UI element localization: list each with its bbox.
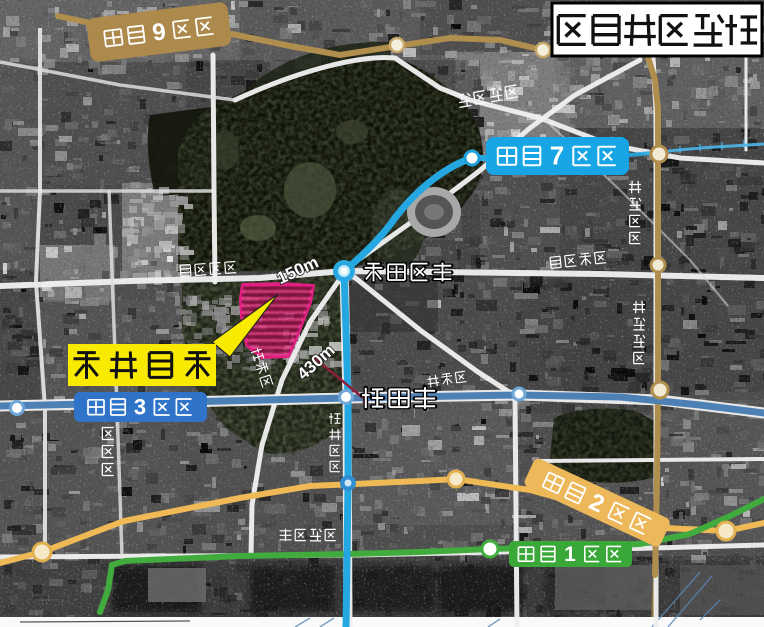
svg-text:7: 7 — [550, 141, 564, 171]
svg-text:3: 3 — [134, 395, 146, 420]
svg-text:1: 1 — [564, 543, 576, 566]
